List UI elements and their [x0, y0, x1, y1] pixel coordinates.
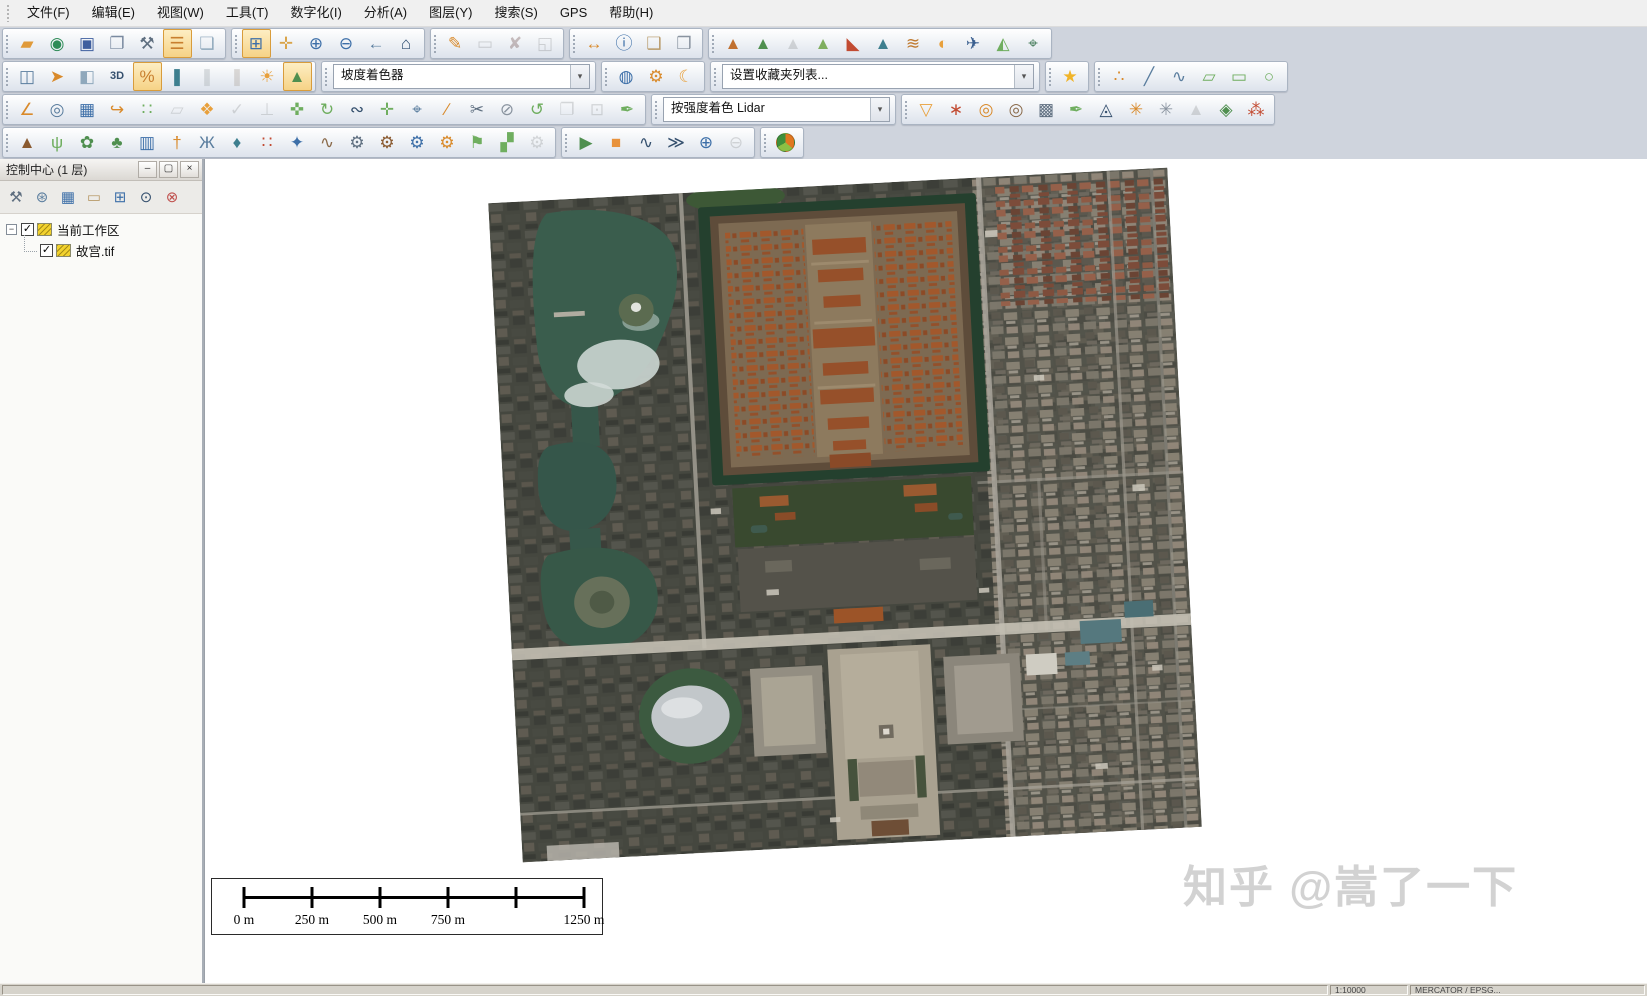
digitizer-edit-button[interactable]: ✎ [441, 29, 470, 58]
view-3d-icon: 3D [110, 71, 124, 82]
lidar-cluster-icon: ✳ [1129, 101, 1143, 118]
palette-toolbar-group [760, 127, 804, 158]
drag-handle[interactable] [234, 34, 238, 53]
lidar-cross-section-button[interactable]: ▩ [1032, 95, 1061, 124]
snap-vertex-icon: ⌖ [412, 101, 422, 118]
lift-feature-button: ⊥ [253, 95, 282, 124]
lidar-surface-button[interactable]: ◈ [1212, 95, 1241, 124]
menu-item-edit[interactable]: 编辑(E) [81, 0, 146, 26]
lidar-select-toolbar-group: 按强度着色 Lidar▾ [651, 94, 896, 125]
draw-polygon-icon: ▱ [1202, 68, 1215, 85]
elevation-shader-button[interactable]: ▲ [719, 29, 748, 58]
edit-vertices-button[interactable]: ∾ [343, 95, 372, 124]
rotate-feature-button[interactable]: ↻ [313, 95, 342, 124]
draw-curve-button[interactable]: ∿ [1165, 62, 1194, 91]
globe-tools-toolbar-group: ◍⚙☾ [601, 61, 705, 92]
water-level-plus-icon: ❚ [200, 68, 214, 85]
draw-curve-icon: ∿ [1172, 68, 1186, 85]
merge-clouds-button[interactable]: ▞ [493, 128, 522, 157]
open-file-icon: ▰ [20, 35, 33, 52]
water-level-button[interactable]: ❚ [163, 62, 192, 91]
layer-tree: −✓当前工作区✓故宫.tif [0, 214, 202, 983]
stop-button[interactable]: ■ [602, 128, 631, 157]
sun-hillshade-icon: ☀ [259, 68, 274, 85]
drag-handle[interactable] [5, 67, 9, 86]
classify-pole-button[interactable]: † [163, 128, 192, 157]
layer-metadata-button[interactable]: ⊛ [29, 185, 55, 209]
lidar-surface-icon: ◈ [1219, 101, 1232, 118]
drag-handle[interactable] [711, 34, 715, 53]
menu-item-analysis[interactable]: 分析(A) [353, 0, 418, 26]
control-center-button[interactable]: ☰ [163, 29, 192, 58]
heat-level-button: ❚ [223, 62, 252, 91]
menu-item-layer[interactable]: 图层(Y) [418, 0, 483, 26]
map-layout-icon: ❐ [109, 35, 124, 52]
projection-globe-button[interactable]: ◍ [612, 62, 641, 91]
configure-button[interactable]: ⚒ [133, 29, 162, 58]
feature-info-button[interactable]: ⓘ [610, 29, 639, 58]
menu-drag-handle[interactable] [6, 4, 10, 22]
night-mode-icon: ☾ [678, 68, 693, 85]
angle-measure-icon: ∠ [19, 101, 34, 118]
add-frame-icon: ⊕ [699, 134, 713, 151]
classify-building-icon: ▥ [139, 134, 155, 151]
select-features-button: ▭ [471, 29, 500, 58]
chevron-down-icon[interactable]: ▾ [570, 65, 589, 88]
previous-view-button[interactable]: ← [362, 29, 391, 58]
path-profile-points-icon: ∿ [320, 134, 334, 151]
smooth-pen-button[interactable]: ✒ [613, 95, 642, 124]
search-attributes-button[interactable]: ❑ [640, 29, 669, 58]
faster-rabbit-icon: ≫ [667, 134, 685, 151]
layer-select-icon: ▭ [87, 190, 101, 205]
smooth-pen-icon: ✒ [620, 101, 634, 118]
toolbar-row-2: ◫➤◧3D%❚❚❚☀▲坡度着色器▾◍⚙☾设置收藏夹列表...▾★∴╱∿▱▭○ [0, 60, 1647, 93]
split-feature-button[interactable]: ✂ [463, 95, 492, 124]
move-feature-icon: ✜ [290, 101, 304, 118]
rotate-feature-icon: ↻ [320, 101, 334, 118]
layer-metadata-icon: ⊛ [36, 190, 49, 205]
layer-options-icon: ⚒ [9, 190, 22, 205]
classify-building-button[interactable]: ▥ [133, 128, 162, 157]
buffer-features-button[interactable]: ❖ [193, 95, 222, 124]
zoom-box-button[interactable]: ⊞ [242, 29, 271, 58]
draw-line-icon: ╱ [1144, 68, 1154, 85]
drag-handle[interactable] [1097, 67, 1101, 86]
classify-ground-icon: ▲ [19, 134, 36, 151]
display-options-icon: ⚙ [648, 68, 663, 85]
download-online-data-icon: ◉ [50, 35, 65, 52]
verify-features-button: ✓ [223, 95, 252, 124]
terrain-compare-icon: ≋ [906, 35, 920, 52]
status-bar: 1:10000MERCATOR / EPSG... [0, 983, 1647, 996]
digitizer-lock-button: ◱ [531, 29, 560, 58]
lidar-cross-section-icon: ▩ [1038, 101, 1054, 118]
lidar-triangulate-icon: ◬ [1099, 101, 1112, 118]
menu-item-gps[interactable]: GPS [549, 0, 598, 26]
classify-noise-icon: ∷ [262, 134, 273, 151]
full-view-icon: ⌂ [401, 35, 411, 52]
auto-classify-poles-button[interactable]: ⚙ [433, 128, 462, 157]
night-mode-button[interactable]: ☾ [672, 62, 701, 91]
maximize-button[interactable]: ▢ [159, 161, 178, 178]
shader-select-dropdown[interactable]: 坡度着色器▾ [333, 64, 590, 89]
digitizer-edit-icon: ✎ [448, 35, 462, 52]
buffer-features-icon: ❖ [199, 101, 214, 118]
draw-circle-icon: ○ [1264, 68, 1274, 85]
viewshed-icon: ◣ [846, 35, 859, 52]
slower-turtle-icon: ∿ [639, 134, 653, 151]
tree-connector [24, 235, 37, 252]
layer-label: 当前工作区 [57, 220, 120, 239]
layer-label: 故宫.tif [76, 241, 114, 260]
zoom-in-button[interactable]: ⊕ [302, 29, 331, 58]
toolbar-row-4: ▲ψ✿♣▥†Ж♦∷✦∿⚙⚙⚙⚙⚑▞⚙▶■∿≫⊕⊖ [0, 126, 1647, 159]
viewshed-button[interactable]: ◣ [839, 29, 868, 58]
zoom-out-button[interactable]: ⊖ [332, 29, 361, 58]
range-rings-icon: ◎ [50, 101, 65, 118]
classify-tree-icon: ♣ [111, 134, 122, 151]
lidar-contour-button: ▲ [1182, 95, 1211, 124]
download-online-data-button[interactable]: ◉ [43, 29, 72, 58]
erase-vertices-button[interactable]: ⊘ [493, 95, 522, 124]
classify-keypoints-button[interactable]: ✦ [283, 128, 312, 157]
close-button[interactable]: × [180, 161, 199, 178]
layer-checkbox[interactable]: ✓ [40, 244, 53, 257]
fly-through-button[interactable]: ✈ [959, 29, 988, 58]
favorites-select-value: 设置收藏夹列表... [723, 65, 1014, 88]
layer-swatch-icon [37, 223, 52, 236]
minimize-button[interactable]: – [138, 161, 157, 178]
control-center-panel: 控制中心 (1 层) – ▢ × ⚒⊛▦▭⊞⊙⊗ −✓当前工作区✓故宫.tif [0, 159, 204, 983]
delete-features-button: ✘ [501, 29, 530, 58]
crop-grid-button: ⊡ [583, 95, 612, 124]
edit-tools-toolbar-group: ∠◎▦↪∷▱❖✓⊥✜↻∾✛⌖∕✂⊘↺❐⊡✒ [2, 94, 646, 125]
layer-close-icon: ⊗ [166, 190, 179, 205]
scalebar-labels: 0 m250 m500 m750 m1250 m [244, 912, 584, 930]
watermark: 知乎 @嵩了一下 [1183, 851, 1518, 915]
classify-water-button[interactable]: ♦ [223, 128, 252, 157]
satellite-image-gugong[interactable] [488, 168, 1202, 863]
rotate-shapes-button[interactable]: ↺ [523, 95, 552, 124]
play-icon: ▶ [579, 134, 592, 151]
control-center-icon: ☰ [169, 35, 184, 52]
angle-measure-button[interactable]: ∠ [13, 95, 42, 124]
drag-handle[interactable] [654, 100, 658, 119]
configure-icon: ⚒ [139, 35, 154, 52]
map-layout-button[interactable]: ❐ [103, 29, 132, 58]
drag-handle[interactable] [763, 133, 767, 152]
toolbar-area: ▰◉▣❐⚒☰❏⊞✛⊕⊖←⌂✎▭✘◱↔ⓘ❑❒▲▲▲▲◣▲≋◐✈◭⌖◫➤◧3D%❚❚… [0, 27, 1647, 159]
lidar-contour-icon: ▲ [1188, 101, 1205, 118]
tree-expander[interactable]: − [6, 224, 17, 235]
fly-through-icon: ✈ [966, 35, 980, 52]
copy-polygon-button: ▱ [163, 95, 192, 124]
open-file-button[interactable]: ▰ [13, 29, 42, 58]
classify-shrub-button[interactable]: ✿ [73, 128, 102, 157]
copy-polygon-icon: ▱ [170, 101, 183, 118]
edit-vertices-icon: ∾ [350, 101, 364, 118]
lidar-fit-icon: ⁂ [1248, 101, 1265, 118]
draw-rectangle-button[interactable]: ▭ [1225, 62, 1254, 91]
lidar-cluster-auto-button[interactable]: ✳ [1152, 95, 1181, 124]
menu-item-tools[interactable]: 工具(T) [215, 0, 280, 26]
layer-select-button[interactable]: ▭ [81, 185, 107, 209]
lidar-triangulate-button[interactable]: ◬ [1092, 95, 1121, 124]
save-button[interactable]: ▣ [73, 29, 102, 58]
delete-features-icon: ✘ [508, 35, 522, 52]
path-profile-points-button[interactable]: ∿ [313, 128, 342, 157]
custom-classify-icon: ⚙ [529, 134, 544, 151]
menu-bar: 文件(F)编辑(E)视图(W)工具(T)数字化(I)分析(A)图层(Y)搜索(S… [0, 0, 1647, 27]
draw-circle-button[interactable]: ○ [1255, 62, 1284, 91]
full-view-button[interactable]: ⌂ [392, 29, 421, 58]
sun-hillshade-button[interactable]: ☀ [253, 62, 282, 91]
tree-item[interactable]: ✓故宫.tif [2, 240, 200, 261]
layer-options-button[interactable]: ⚒ [3, 185, 29, 209]
chevron-down-icon[interactable]: ▾ [870, 98, 889, 121]
lidar-extract-icon: ✒ [1069, 101, 1083, 118]
watershed-button[interactable]: ▲ [869, 29, 898, 58]
attach-line-button[interactable]: ∕ [433, 95, 462, 124]
layer-zoom-button[interactable]: ⊞ [107, 185, 133, 209]
play-button[interactable]: ▶ [572, 128, 601, 157]
slower-turtle-button[interactable]: ∿ [632, 128, 661, 157]
favorites-toolbar-group: ★ [1045, 61, 1089, 92]
previous-view-icon: ← [368, 35, 385, 52]
auto-classify-points-button[interactable]: ⚙ [343, 128, 372, 157]
transparency-percent-button[interactable]: % [133, 62, 162, 91]
scalebar-line [244, 896, 584, 899]
layer-attributes-icon: ▦ [61, 190, 75, 205]
draw-cells-icon: ∷ [142, 101, 153, 118]
lidar-query-icon: ◎ [979, 101, 994, 118]
lidar-query-plus-button[interactable]: ◎ [1002, 95, 1031, 124]
contour-lines-button[interactable]: ▲ [749, 29, 778, 58]
file-tools-toolbar-group: ▰◉▣❐⚒☰❏ [2, 28, 226, 59]
layer-zoom-icon: ⊞ [114, 190, 127, 205]
auto-classify-buildings-icon: ⚙ [409, 134, 424, 151]
projection-globe-icon: ◍ [619, 68, 634, 85]
attach-line-icon: ∕ [446, 101, 449, 118]
drag-handle[interactable] [433, 34, 437, 53]
map-view[interactable]: 0 m250 m500 m750 m1250 m 知乎 @嵩了一下 [204, 159, 1647, 983]
drag-handle[interactable] [1048, 67, 1052, 86]
terrain-paint-button[interactable]: ▲ [809, 29, 838, 58]
classify-grass-button[interactable]: ψ [43, 128, 72, 157]
view-tools-toolbar-group: ◫➤◧3D%❚❚❚☀▲ [2, 61, 316, 92]
path-profile-button: ▲ [779, 29, 808, 58]
compass-icon: ➤ [50, 68, 64, 85]
dock-view-icon: ◧ [79, 68, 95, 85]
scalebar-label: 0 m [234, 912, 255, 928]
scalebar-label: 750 m [431, 912, 465, 928]
remove-frame-button: ⊖ [722, 128, 751, 157]
snap-vertex-button[interactable]: ⌖ [403, 95, 432, 124]
menu-item-help[interactable]: 帮助(H) [598, 0, 664, 26]
favorites-select-dropdown[interactable]: 设置收藏夹列表...▾ [722, 64, 1034, 89]
draw-grid-icon: ▦ [79, 101, 95, 118]
drag-handle[interactable] [5, 100, 9, 119]
draw-grid-button[interactable]: ▦ [73, 95, 102, 124]
main-area: 控制中心 (1 层) – ▢ × ⚒⊛▦▭⊞⊙⊗ −✓当前工作区✓故宫.tif [0, 159, 1647, 983]
zoom-tools-toolbar-group: ⊞✛⊕⊖←⌂ [231, 28, 425, 59]
color-palette-icon [776, 133, 795, 152]
terrain-sculpt-button[interactable]: ◭ [989, 29, 1018, 58]
overlay-view-button[interactable]: ❏ [193, 29, 222, 58]
auto-classify-points-icon: ⚙ [349, 134, 364, 151]
add-frame-button[interactable]: ⊕ [692, 128, 721, 157]
elevation-shader-icon: ▲ [725, 35, 742, 52]
lidar-classify-button[interactable]: ∗ [942, 95, 971, 124]
digitizer-lock-icon: ◱ [537, 35, 553, 52]
shader-select-toolbar-group: 坡度着色器▾ [321, 61, 596, 92]
search-attributes-icon: ❑ [646, 35, 661, 52]
save-icon: ▣ [79, 35, 95, 52]
crop-grid-icon: ⊡ [590, 101, 604, 118]
auto-classify-buildings-button[interactable]: ⚙ [403, 128, 432, 157]
layer-visibility-button[interactable]: ⊙ [133, 185, 159, 209]
menu-item-file[interactable]: 文件(F) [16, 0, 81, 26]
panel-toolbar: ⚒⊛▦▭⊞⊙⊗ [0, 181, 202, 214]
feature-info-icon: ⓘ [616, 35, 633, 52]
draw-point-button[interactable]: ∴ [1105, 62, 1134, 91]
split-screen-button[interactable]: ◫ [13, 62, 42, 91]
terrain-compare-button[interactable]: ≋ [899, 29, 928, 58]
remove-frame-icon: ⊖ [729, 134, 743, 151]
slope-shader-toggle-button[interactable]: ▲ [283, 62, 312, 91]
move-vertex-icon: ✛ [380, 101, 394, 118]
water-level-icon: ❚ [170, 68, 184, 85]
draw-tools-toolbar-group: ∴╱∿▱▭○ [1094, 61, 1288, 92]
layer-swatch-icon [56, 244, 71, 257]
lidar-cluster-button[interactable]: ✳ [1122, 95, 1151, 124]
compass-button[interactable]: ➤ [43, 62, 72, 91]
drag-handle[interactable] [5, 34, 9, 53]
lidar-filter-button[interactable]: ▽ [912, 95, 941, 124]
split-screen-icon: ◫ [19, 68, 35, 85]
path-profile-icon: ▲ [785, 35, 802, 52]
terrain-sculpt-icon: ◭ [996, 35, 1009, 52]
auto-classify-ground-button[interactable]: ⚙ [373, 128, 402, 157]
layer-visibility-icon: ⊙ [140, 190, 153, 205]
toolbar-row-3: ∠◎▦↪∷▱❖✓⊥✜↻∾✛⌖∕✂⊘↺❐⊡✒按强度着色 Lidar▾▽∗◎◎▩✒◬… [0, 93, 1647, 126]
flag-region-button[interactable]: ⚑ [463, 128, 492, 157]
move-vertex-button[interactable]: ✛ [373, 95, 402, 124]
slope-shader-toggle-icon: ▲ [289, 68, 306, 85]
favorite-star-button[interactable]: ★ [1056, 62, 1085, 91]
drag-handle[interactable] [604, 67, 608, 86]
move-3d-button[interactable]: ⌖ [1019, 29, 1048, 58]
classify-tree-button[interactable]: ♣ [103, 128, 132, 157]
zoom-out-icon: ⊖ [339, 35, 353, 52]
classify-ground-button[interactable]: ▲ [13, 128, 42, 157]
rotate-shapes-icon: ↺ [530, 101, 544, 118]
script-document-button[interactable]: ❒ [670, 29, 699, 58]
lidar-classify-icon: ∗ [949, 101, 963, 118]
drag-handle[interactable] [324, 67, 328, 86]
lidar-query-button[interactable]: ◎ [972, 95, 1001, 124]
status-cell-0 [2, 985, 1328, 995]
shader-select-value: 坡度着色器 [334, 65, 570, 88]
range-rings-button[interactable]: ◎ [43, 95, 72, 124]
faster-rabbit-button[interactable]: ≫ [662, 128, 691, 157]
water-level-plus-button: ❚ [193, 62, 222, 91]
color-relief-button[interactable]: ◐ [929, 29, 958, 58]
pan-button[interactable]: ✛ [272, 29, 301, 58]
flag-region-icon: ⚑ [469, 134, 484, 151]
trace-feature-button[interactable]: ↪ [103, 95, 132, 124]
classify-shrub-icon: ✿ [80, 134, 94, 151]
verify-features-icon: ✓ [230, 101, 244, 118]
menu-item-search[interactable]: 搜索(S) [483, 0, 548, 26]
draw-polygon-button[interactable]: ▱ [1195, 62, 1224, 91]
classify-noise-button[interactable]: ∷ [253, 128, 282, 157]
display-options-button[interactable]: ⚙ [642, 62, 671, 91]
contour-lines-icon: ▲ [755, 35, 772, 52]
drag-handle[interactable] [564, 133, 568, 152]
drag-handle[interactable] [713, 67, 717, 86]
zoom-in-icon: ⊕ [309, 35, 323, 52]
draw-line-button[interactable]: ╱ [1135, 62, 1164, 91]
move-feature-button[interactable]: ✜ [283, 95, 312, 124]
scalebar-label: 250 m [295, 912, 329, 928]
script-document-icon: ❒ [676, 35, 691, 52]
menu-item-view[interactable]: 视图(W) [146, 0, 215, 26]
watershed-icon: ▲ [875, 35, 892, 52]
classify-pole-icon: † [172, 134, 181, 151]
overlay-view-icon: ❏ [199, 35, 214, 52]
lidar-extract-button[interactable]: ✒ [1062, 95, 1091, 124]
copy-shapes-icon: ❐ [559, 101, 574, 118]
drag-handle[interactable] [904, 100, 908, 119]
lidar-fit-button[interactable]: ⁂ [1242, 95, 1271, 124]
color-palette-button[interactable] [771, 128, 800, 157]
dock-view-button[interactable]: ◧ [73, 62, 102, 91]
draw-point-icon: ∴ [1114, 68, 1125, 85]
lidar-filter-icon: ▽ [919, 101, 932, 118]
draw-rectangle-icon: ▭ [1231, 68, 1247, 85]
layer-attributes-button[interactable]: ▦ [55, 185, 81, 209]
lidar-query-plus-icon: ◎ [1009, 101, 1024, 118]
erase-vertices-icon: ⊘ [500, 101, 514, 118]
terrain-analysis-toolbar-group: ▲▲▲▲◣▲≋◐✈◭⌖ [708, 28, 1052, 59]
measure-button[interactable]: ↔ [580, 29, 609, 58]
info-tools-toolbar-group: ↔ⓘ❑❒ [569, 28, 703, 59]
lidar-select-value: 按强度着色 Lidar [664, 98, 870, 121]
drag-handle[interactable] [5, 133, 9, 152]
pan-icon: ✛ [279, 35, 293, 52]
classify-tools-toolbar-group: ▲ψ✿♣▥†Ж♦∷✦∿⚙⚙⚙⚙⚑▞⚙ [2, 127, 556, 158]
drag-handle[interactable] [572, 34, 576, 53]
custom-classify-button: ⚙ [523, 128, 552, 157]
copy-shapes-button: ❐ [553, 95, 582, 124]
panel-title: 控制中心 (1 层) [6, 161, 136, 178]
classify-powerline-button[interactable]: Ж [193, 128, 222, 157]
auto-classify-poles-icon: ⚙ [439, 134, 454, 151]
auto-classify-ground-icon: ⚙ [379, 134, 394, 151]
layer-close-button[interactable]: ⊗ [159, 185, 185, 209]
trace-feature-icon: ↪ [110, 101, 124, 118]
view-3d-button[interactable]: 3D [103, 62, 132, 91]
menu-item-digitize[interactable]: 数字化(I) [280, 0, 353, 26]
select-features-icon: ▭ [477, 35, 493, 52]
scale-bar: 0 m250 m500 m750 m1250 m [211, 878, 603, 935]
draw-cells-button[interactable]: ∷ [133, 95, 162, 124]
chevron-down-icon[interactable]: ▾ [1014, 65, 1033, 88]
lidar-cluster-auto-icon: ✳ [1159, 101, 1173, 118]
lidar-select-dropdown[interactable]: 按强度着色 Lidar▾ [663, 97, 890, 122]
